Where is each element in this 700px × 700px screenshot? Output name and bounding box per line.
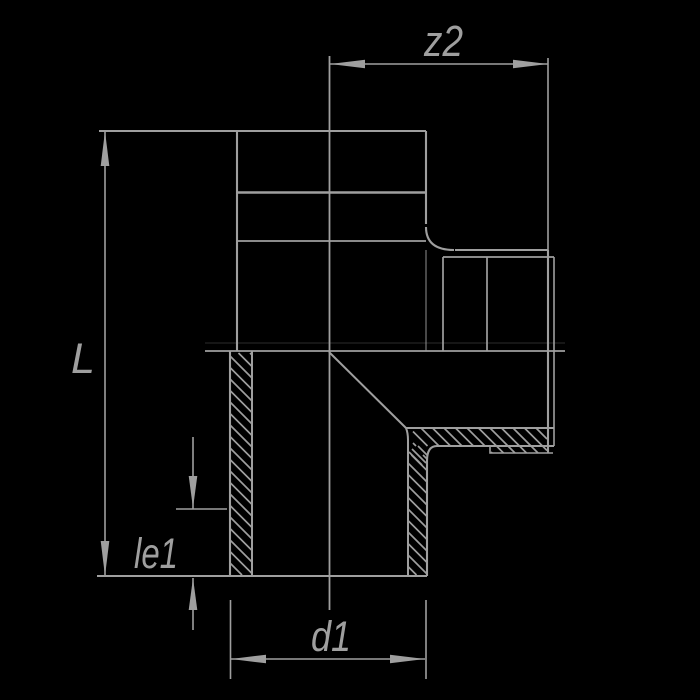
svg-text:L: L	[71, 335, 95, 383]
svg-text:le1: le1	[134, 530, 178, 578]
svg-text:d1: d1	[311, 613, 351, 661]
svg-text:z2: z2	[423, 17, 463, 66]
